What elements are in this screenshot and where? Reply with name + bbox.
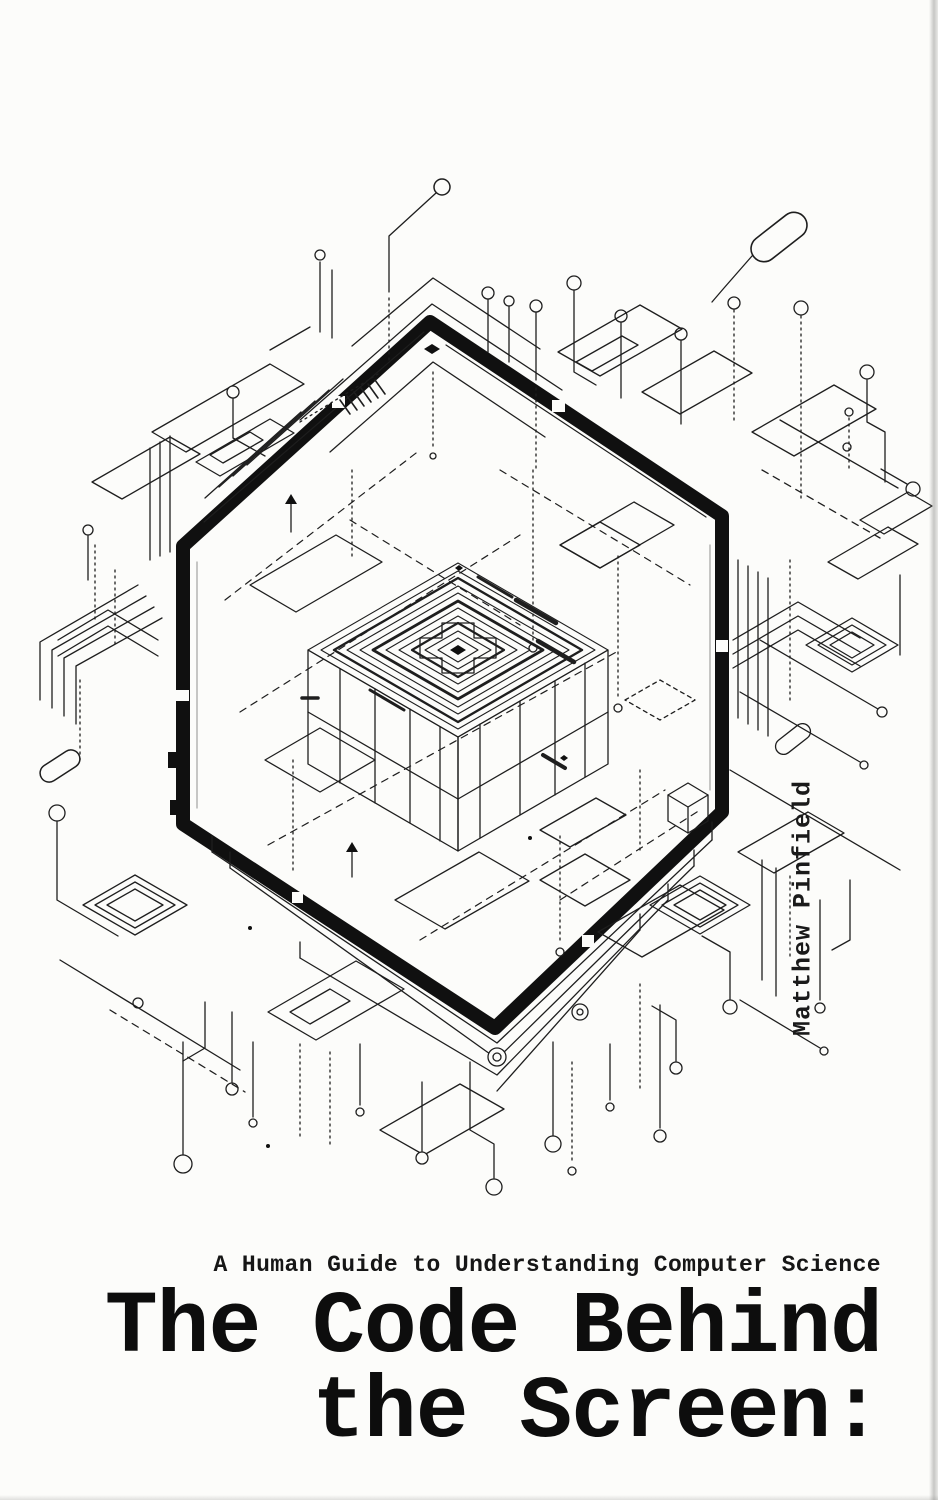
title-line-1: The Code Behind (105, 1286, 882, 1371)
outer-traces-bottom-left (37, 746, 504, 1173)
core-chip (250, 502, 674, 929)
cover-edge-shadow-right (929, 0, 938, 1500)
book-title: The Code Behind the Screen: (105, 1286, 882, 1456)
book-cover: Matthew Pinfield A Human Guide to Unders… (0, 0, 938, 1500)
outer-traces-bottom-right (212, 812, 850, 1195)
outer-traces-right (730, 527, 918, 870)
subtitle: A Human Guide to Understanding Computer … (213, 1252, 881, 1278)
cover-edge-shadow-bottom (0, 1495, 938, 1500)
title-line-2: the Screen: (105, 1371, 882, 1456)
author-name: Matthew Pinfield (789, 780, 818, 1036)
outer-traces-top-right (482, 207, 932, 538)
